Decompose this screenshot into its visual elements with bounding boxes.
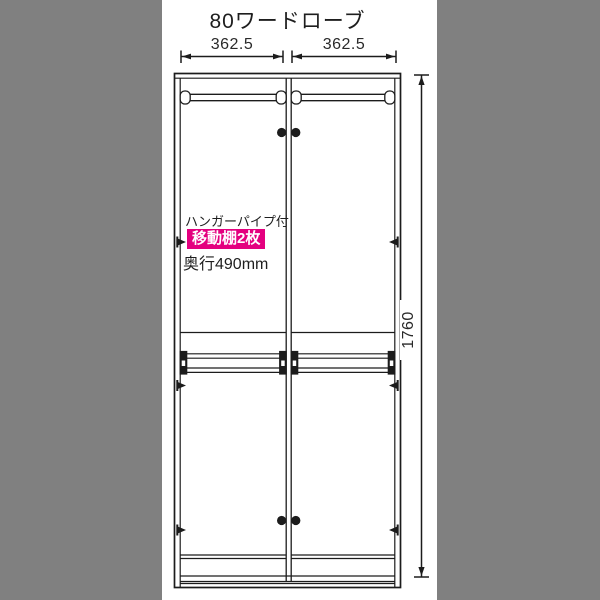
hanger-pipe-right [291, 91, 395, 104]
hanger-pipe-label: ハンガーパイプ付 [185, 211, 289, 230]
wardrobe-dimension-diagram: 80ワードローブ 362.5 362.5 [0, 0, 600, 600]
movable-shelves-left [180, 352, 286, 375]
depth-label: 奥行490mm [183, 250, 268, 274]
movable-shelves-right [291, 352, 395, 375]
hinge-marks-left [176, 237, 186, 536]
hinge-marks-right [389, 237, 399, 536]
center-door-gap [286, 78, 291, 582]
height-dimension-label: 1760 [400, 300, 420, 360]
width-dimension-left-line [181, 51, 283, 64]
door-knob-lower-right [291, 516, 300, 525]
base-band [180, 576, 395, 584]
door-knob-lower-left [277, 516, 286, 525]
hanger-pipe-left [180, 91, 286, 104]
door-knob-upper-left [277, 128, 286, 137]
width-dimension-right-line [292, 51, 396, 64]
movable-shelves-badge: 移動棚2枚 [187, 229, 265, 249]
door-knob-upper-right [291, 128, 300, 137]
cabinet-outer-frame [175, 74, 401, 588]
wardrobe-line-drawing [0, 0, 600, 600]
bottom-floor [180, 555, 395, 559]
